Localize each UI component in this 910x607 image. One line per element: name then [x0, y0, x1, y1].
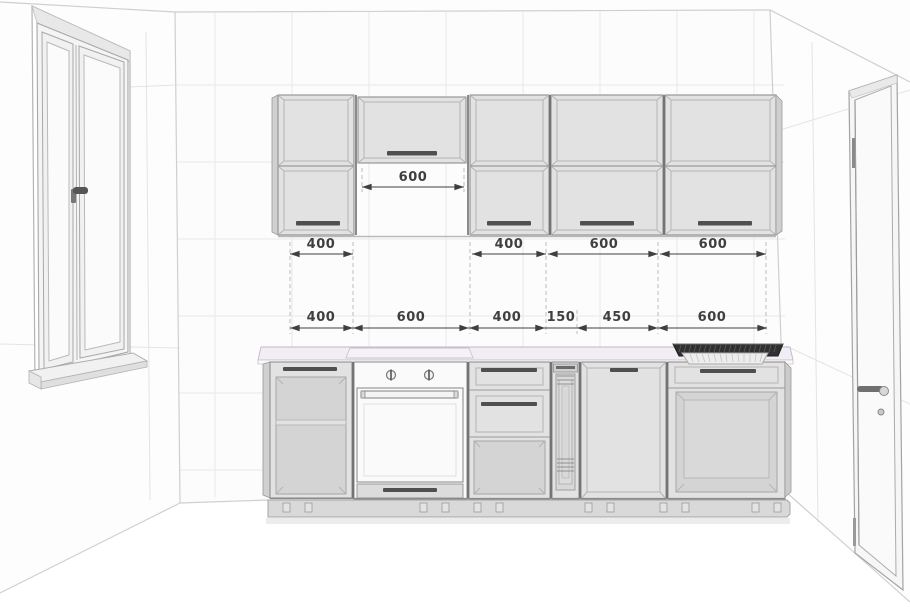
cabinet-handle [580, 221, 634, 226]
dim-label-base-5: 450 [603, 310, 632, 325]
dim-label-base-6: 600 [698, 310, 727, 325]
kitchen-3d-render: 600 400 400 600 600 400 600 400 150 450 … [0, 0, 910, 607]
base-cabinets [263, 362, 791, 517]
door-hinge-lower-icon [853, 518, 856, 546]
window-glass-left [47, 42, 69, 361]
cabinet-handle [487, 221, 531, 226]
dim-label-upper-2: 400 [495, 237, 524, 252]
wall-cabinet-600-second [665, 95, 782, 235]
base-cabinet-400-open [270, 362, 352, 498]
dim-label-base-2: 600 [397, 310, 426, 325]
cabinet-handle [387, 151, 437, 156]
cabinet-floor-shadow [266, 518, 790, 524]
oven-door [357, 388, 463, 482]
shelf [276, 420, 346, 425]
sink-cabinet-600 [668, 362, 791, 499]
oven-unit-600 [354, 362, 467, 499]
wall-cabinet-600-first [551, 95, 663, 235]
base-cabinet-450 [581, 362, 666, 499]
oven-handle-icon [361, 391, 458, 398]
oven-knob-icon [387, 370, 396, 381]
upper-cabinets [272, 95, 782, 237]
dim-label-upper-4: 600 [699, 237, 728, 252]
cabinet-handle [296, 221, 340, 226]
upper-left-side-panel [272, 95, 278, 235]
cabinet-handle [610, 368, 638, 372]
pullout-unit-150 [552, 362, 579, 499]
cabinet-handle [700, 369, 756, 373]
dim-label-upper-3: 600 [590, 237, 619, 252]
wall-cabinet-400-right [470, 95, 549, 235]
cabinet-handle [481, 402, 537, 406]
dim-label-upper-1: 400 [307, 237, 336, 252]
entry-door [849, 75, 903, 590]
window-glass-right [84, 55, 120, 350]
dim-label-base-1: 400 [307, 310, 336, 325]
plinth [268, 500, 790, 517]
cabinet-handle [283, 367, 337, 371]
door-leaf [855, 86, 896, 576]
upper-right-side-panel [776, 95, 782, 235]
oven-knob-icon [425, 370, 434, 381]
cabinet-handle [698, 221, 752, 226]
wall-cabinet-400-left [278, 95, 354, 235]
base-cabinet-400-drawers [469, 362, 550, 499]
base-right-side-panel [785, 362, 791, 497]
base-left-side-panel [263, 362, 270, 498]
cabinet-handle [481, 368, 537, 372]
cabinet-handle [383, 488, 437, 492]
door-hinge-icon [852, 138, 855, 168]
hood-cabinet-600 [358, 97, 466, 163]
door-keyhole-icon [878, 409, 884, 415]
dim-label-base-3: 400 [493, 310, 522, 325]
dim-label-base-4: 150 [547, 310, 576, 325]
hob-outline [346, 348, 473, 358]
dim-label-hood-gap: 600 [399, 170, 428, 185]
window [29, 6, 147, 389]
pullout-rail [556, 366, 575, 369]
